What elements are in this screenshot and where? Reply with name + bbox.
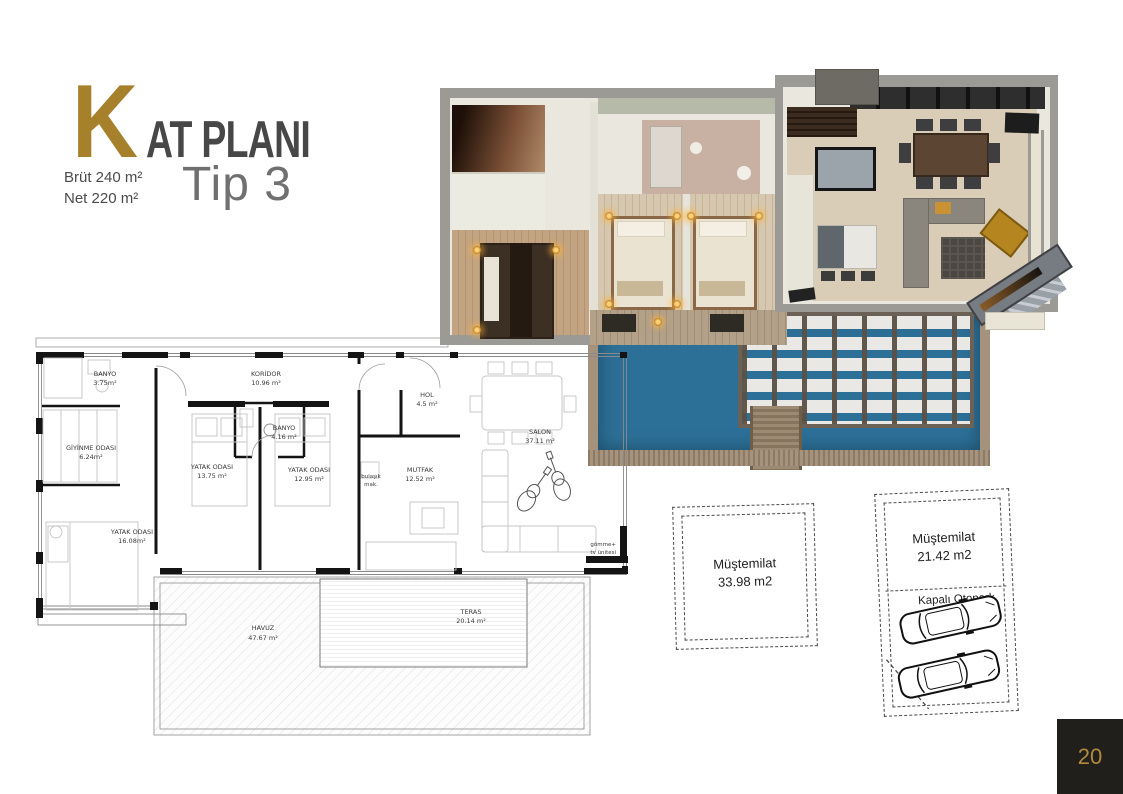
curtain-box (1005, 112, 1040, 133)
guitar-icon (541, 449, 573, 502)
room-area: 37.11 m² (525, 437, 555, 445)
car-icon (896, 645, 1003, 702)
room-label: MUTFAK (407, 466, 434, 474)
room-label: BANYO (273, 424, 296, 432)
room-area: 4.5 m² (416, 400, 438, 408)
room-label: YATAK ODASI (190, 463, 233, 471)
bathroom-render (642, 120, 760, 194)
page-title: AT PLANI (146, 119, 310, 162)
stool (841, 271, 855, 281)
chimney (815, 69, 879, 105)
room-label: TERAS (460, 608, 482, 616)
bed (611, 216, 675, 310)
area-summary: Brüt 240 m² Net 220 m² (64, 167, 142, 209)
bed (480, 243, 554, 339)
room-label: SALON (529, 428, 551, 436)
annex-mustemilat-1: Müştemilat 33.98 m2 (672, 503, 818, 650)
room-label: GİYİNME ODASI (66, 443, 116, 452)
note-dishwasher: bulaşık (361, 474, 381, 480)
chair (899, 143, 911, 163)
chair (916, 177, 933, 189)
bed (693, 216, 757, 310)
room-label: HOL (420, 391, 434, 399)
room-area: 13.75 m² (197, 472, 227, 480)
render-3d-living (775, 75, 1058, 312)
chair (940, 119, 957, 131)
pool-deck (154, 577, 590, 735)
planter-strip (598, 98, 785, 114)
kitchen-cabinets (787, 175, 814, 301)
room-area: 16.08m² (118, 537, 146, 545)
room-area: 4.16 m² (271, 433, 297, 441)
pantry-slats (787, 107, 857, 137)
room-area: 47.67 m² (248, 634, 278, 642)
deck-edge (588, 450, 990, 466)
coffee-table (941, 237, 985, 279)
title-initial: K (72, 80, 138, 165)
room-area: 12.52 m² (405, 475, 435, 483)
room-label: YATAK ODASI (287, 466, 330, 474)
dining-table (913, 133, 989, 177)
chair (988, 143, 1000, 163)
chair (964, 119, 981, 131)
room-label: YATAK ODASI (110, 528, 153, 536)
note-dishwasher: mak. (364, 482, 378, 488)
room-area: 3.75m² (93, 379, 117, 387)
room-area: 12.95 m² (294, 475, 324, 483)
window-sill (985, 312, 1045, 330)
annex-mustemilat-2: Müştemilat 21.42 m2 Kapalı Otopark (874, 488, 1019, 717)
room-area: 10.96 m² (251, 379, 281, 387)
closet-render (452, 172, 545, 232)
gross-area: Brüt 240 m² (64, 167, 142, 188)
chair (916, 119, 933, 131)
parking-cars (875, 489, 1018, 716)
chair (940, 177, 957, 189)
page-number: 20 (1078, 744, 1102, 770)
annex-label: Müştemilat 33.98 m2 (674, 554, 815, 591)
stool (861, 271, 875, 281)
room-area: 6.24m² (79, 453, 103, 461)
room-area: 20.14 m² (456, 617, 486, 625)
car-icon (897, 591, 1004, 648)
floor-plan-2d: BANYO 3.75m² GİYİNME ODASI 6.24m² YATAK … (30, 330, 630, 742)
bathroom-render (452, 105, 545, 172)
net-area: Net 220 m² (64, 188, 142, 209)
note-tv-unit: gömme+ (590, 542, 616, 548)
note-tv-unit: tv ünitesi (590, 550, 616, 556)
sofa (903, 198, 929, 288)
framed-panel (815, 147, 876, 191)
cushion (935, 202, 951, 214)
annex-name: Müştemilat (713, 555, 776, 572)
render-3d-house (440, 88, 787, 345)
roof-overhang (36, 338, 448, 347)
skylight (850, 87, 1045, 109)
kitchen-island (817, 225, 877, 269)
room-label: KORİDOR (251, 369, 282, 378)
page-number-badge: 20 (1057, 719, 1123, 794)
room-label: BANYO (94, 370, 117, 378)
annex-area: 33.98 m2 (718, 573, 773, 589)
stool (821, 271, 835, 281)
chair (964, 177, 981, 189)
wall (590, 102, 598, 342)
plan-type: Tip 3 (182, 157, 292, 212)
room-label: HAVUZ (252, 624, 275, 632)
guitar-icon (514, 464, 556, 515)
